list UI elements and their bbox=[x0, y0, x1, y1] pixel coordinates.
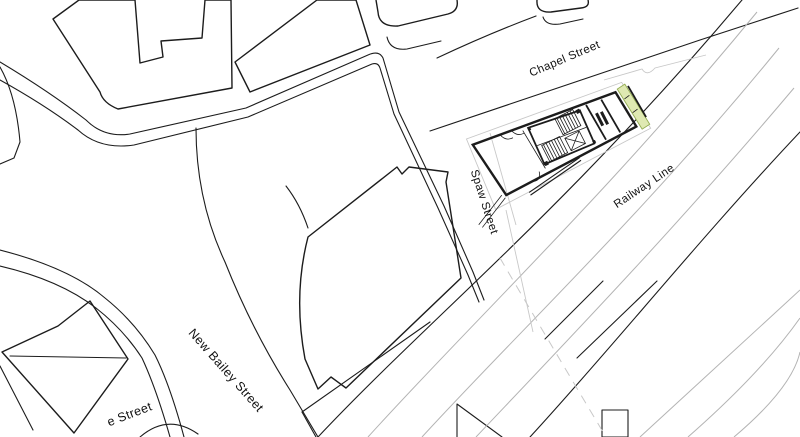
kerb-newbailey-east bbox=[286, 186, 308, 228]
boundary-dashed-line bbox=[500, 258, 606, 437]
building-outline-rounded-1 bbox=[376, 0, 457, 26]
boundary-wall-1 bbox=[526, 158, 583, 192]
bridge-edge-2 bbox=[577, 281, 657, 358]
pavement-arc-2 bbox=[543, 17, 583, 24]
kerb-line-northwest-inner bbox=[0, 64, 479, 303]
street-labels: Chapel Street Spaw Street Railway Line N… bbox=[105, 39, 677, 429]
building-outline-central bbox=[300, 167, 461, 389]
label-partial-street: e Street bbox=[105, 399, 154, 429]
street-network bbox=[0, 8, 798, 437]
railway-track-1 bbox=[368, 12, 757, 437]
kerb-chapel-north bbox=[437, 16, 536, 58]
building-outlines bbox=[0, 0, 588, 437]
boundary-wall-2 bbox=[527, 161, 584, 195]
railway-curve-1 bbox=[640, 290, 800, 437]
site-outer-wall bbox=[473, 75, 637, 198]
railway-curve-3 bbox=[734, 352, 800, 437]
building-outline-topleft bbox=[53, 0, 232, 109]
building-corner-lowercentre bbox=[302, 412, 316, 437]
site-partition-east-1 bbox=[586, 104, 606, 141]
railway-track-3 bbox=[476, 88, 794, 437]
site-boundary bbox=[461, 62, 651, 209]
boundary-extension-line bbox=[506, 210, 533, 332]
bridge-edge-1 bbox=[545, 281, 603, 339]
site-location-plan: Chapel Street Spaw Street Railway Line N… bbox=[0, 0, 800, 437]
stair-hatching-a bbox=[542, 137, 568, 162]
kerb-newbailey-bend bbox=[196, 128, 318, 437]
label-new-bailey-street: New Bailey Street bbox=[186, 326, 267, 415]
building-edge-bottomleft bbox=[10, 356, 126, 358]
structure-corner-rail bbox=[457, 404, 502, 437]
structure-box-bottom bbox=[602, 410, 628, 437]
building-edge-lowercentre bbox=[302, 322, 430, 412]
railway-edge-northwest bbox=[318, 0, 742, 437]
railway-track-2 bbox=[422, 48, 779, 437]
site-partition-west bbox=[523, 129, 546, 170]
label-chapel-street: Chapel Street bbox=[528, 39, 603, 80]
pavement-arc-1 bbox=[387, 37, 441, 49]
building-outline-rounded-2 bbox=[537, 0, 588, 12]
kerb-chapel-south bbox=[430, 8, 798, 131]
building-outline-bottomleft bbox=[2, 301, 128, 433]
kerb-line-northwest-outer bbox=[0, 53, 484, 300]
building-outline-topcentre bbox=[235, 0, 370, 92]
building-seam-bottomleft bbox=[0, 366, 33, 430]
